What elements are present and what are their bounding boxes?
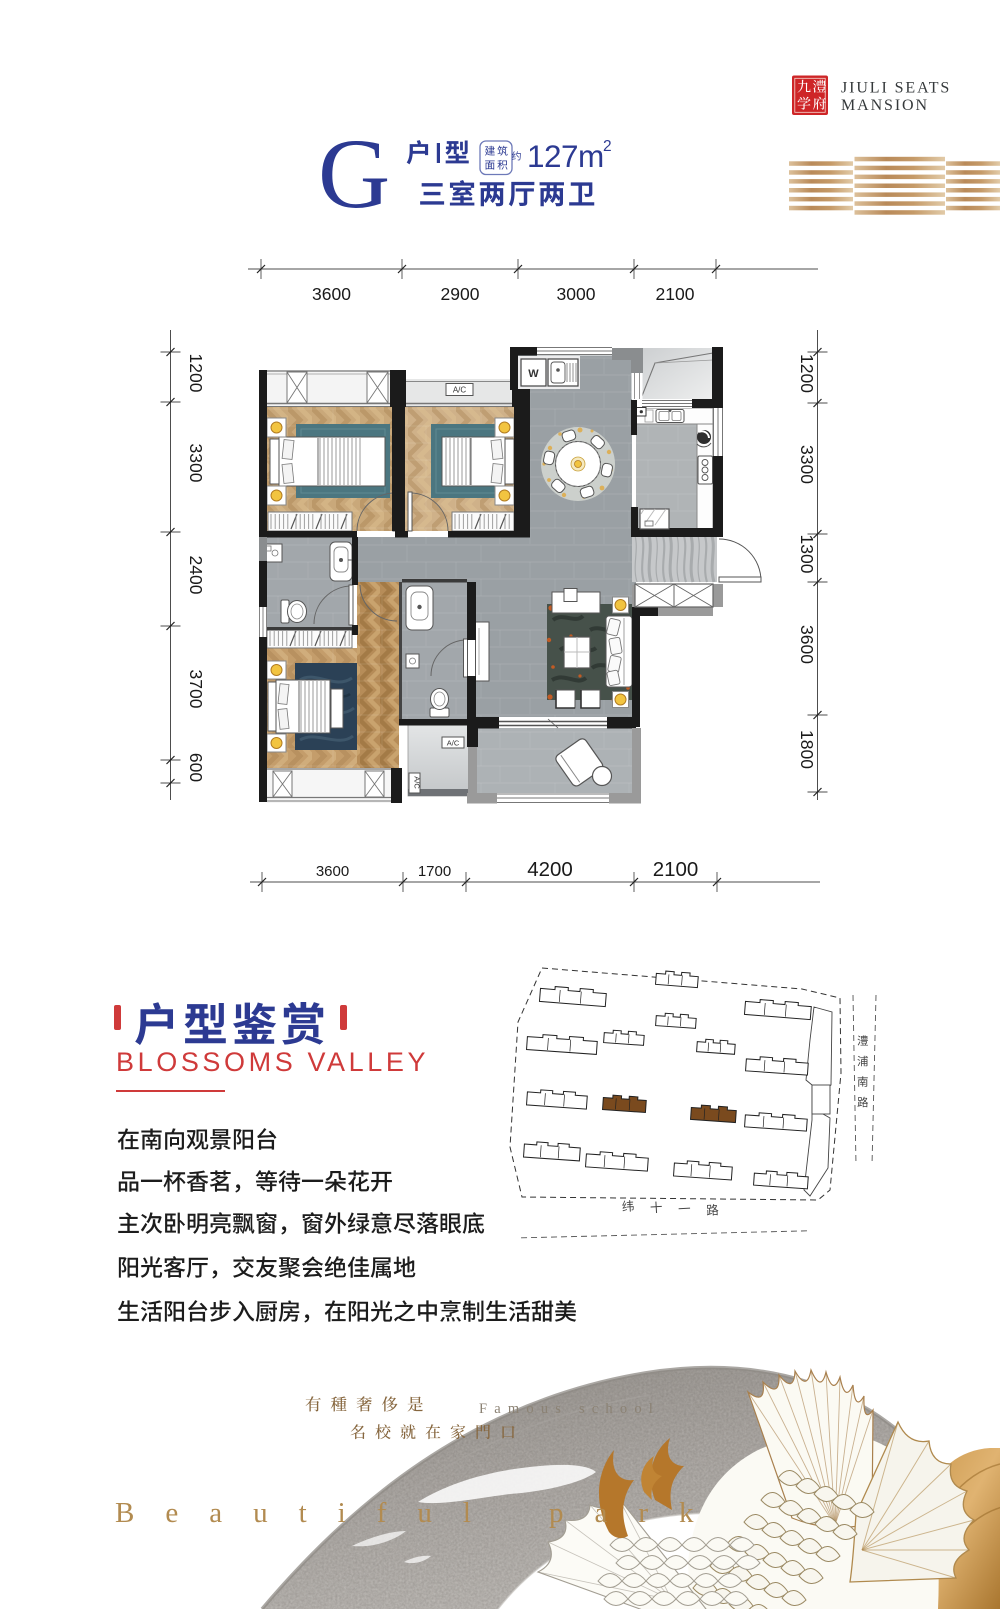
svg-text:A/C: A/C <box>413 776 422 789</box>
svg-text:A/C: A/C <box>447 739 460 748</box>
svg-text:1200: 1200 <box>186 354 206 393</box>
svg-text:4200: 4200 <box>527 858 573 881</box>
svg-text:2100: 2100 <box>656 284 695 304</box>
svg-text:1700: 1700 <box>418 863 451 880</box>
svg-text:3600: 3600 <box>316 863 349 880</box>
svg-text:1800: 1800 <box>797 730 817 769</box>
svg-text:3000: 3000 <box>557 284 596 304</box>
svg-text:A/C: A/C <box>453 386 467 395</box>
svg-text:W: W <box>528 368 539 380</box>
svg-text:2100: 2100 <box>653 858 699 881</box>
svg-text:3600: 3600 <box>312 284 351 304</box>
svg-text:JIULI SEATS: JIULI SEATS <box>841 80 951 97</box>
svg-text:MANSION: MANSION <box>841 97 929 114</box>
svg-text:2900: 2900 <box>441 284 480 304</box>
svg-text:3700: 3700 <box>186 670 206 709</box>
svg-text:1200: 1200 <box>797 354 817 393</box>
svg-text:BLOSSOMS VALLEY: BLOSSOMS VALLEY <box>116 1047 429 1077</box>
svg-text:3600: 3600 <box>797 625 817 664</box>
svg-text:127m: 127m <box>527 138 604 174</box>
svg-text:2: 2 <box>603 138 612 155</box>
svg-text:600: 600 <box>186 753 206 782</box>
svg-text:Beautiful: Beautiful <box>115 1497 502 1529</box>
svg-text:1300: 1300 <box>797 535 817 574</box>
svg-text:2400: 2400 <box>186 556 206 595</box>
svg-text:park: park <box>549 1497 725 1529</box>
svg-text:3300: 3300 <box>797 445 817 484</box>
svg-text:3300: 3300 <box>186 444 206 483</box>
svg-text:Famous school: Famous school <box>479 1401 660 1417</box>
